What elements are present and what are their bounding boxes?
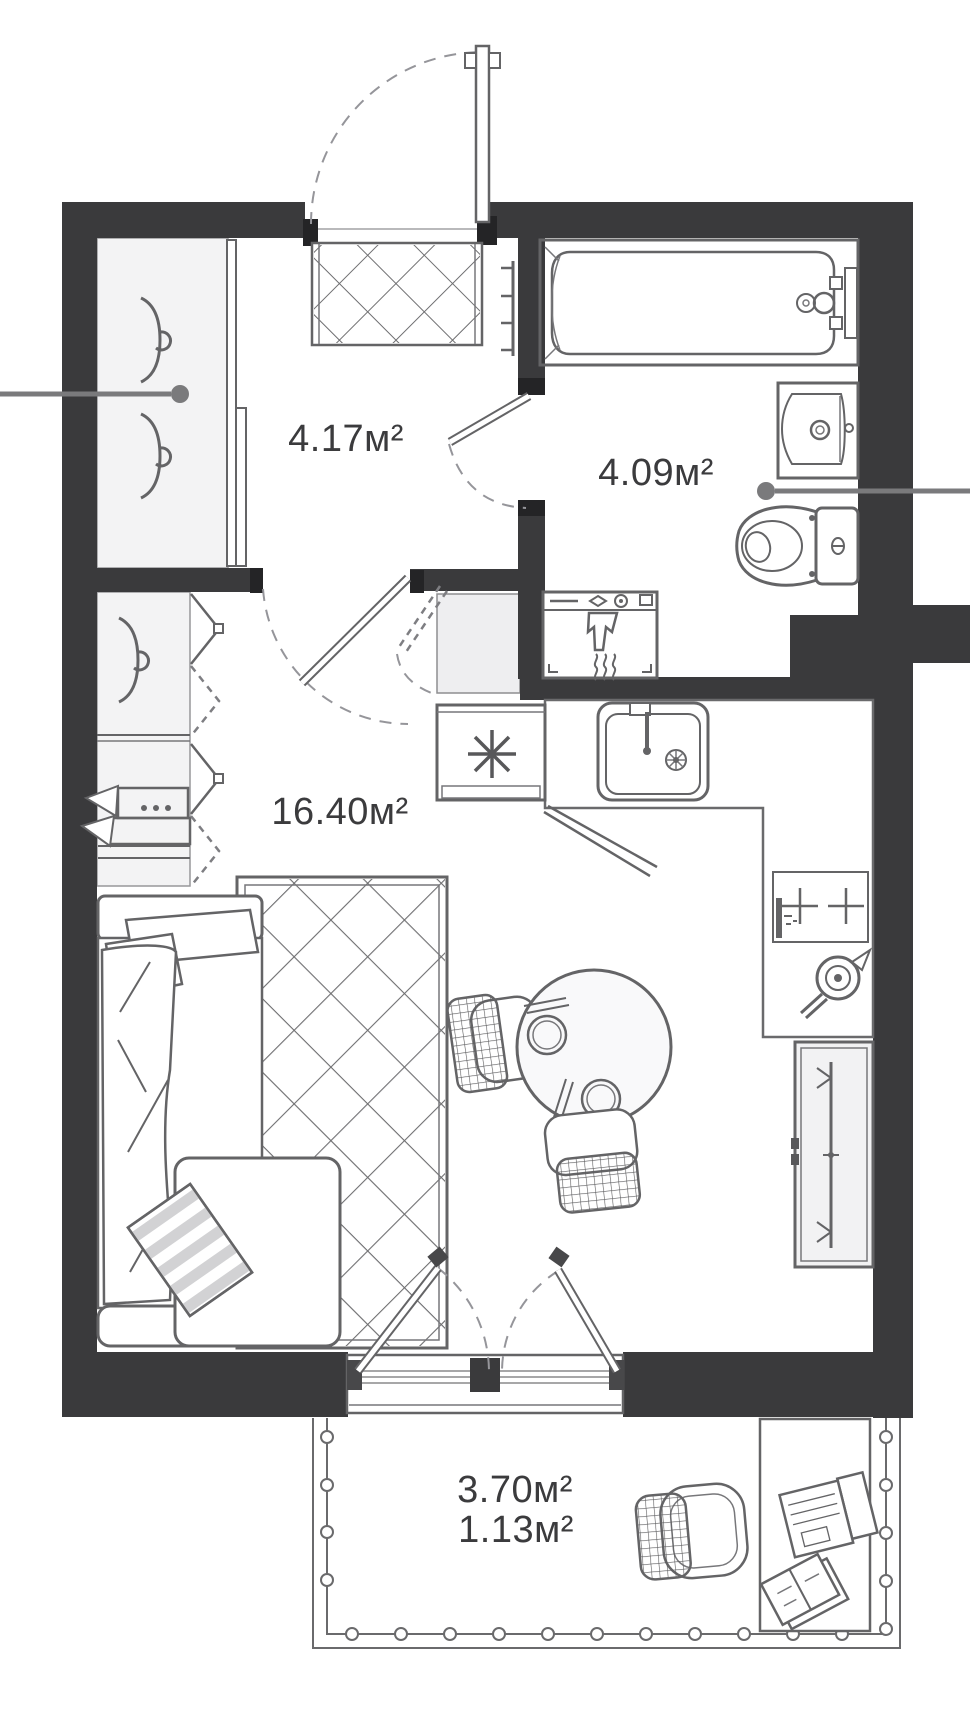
area-label-hallway: 4.17м² bbox=[288, 418, 404, 460]
dining-set bbox=[446, 970, 671, 1215]
bathtub bbox=[540, 240, 858, 365]
wall-segment bbox=[623, 1352, 912, 1417]
entry-closet-floor bbox=[97, 238, 228, 568]
floor-plan: 4.17м² 4.09м² 16.40м² 3.70м² 1.13м² bbox=[0, 0, 970, 1710]
wall-segment bbox=[913, 605, 970, 663]
window-mullion bbox=[470, 1358, 500, 1392]
door-handle bbox=[489, 53, 500, 68]
balcony bbox=[313, 1418, 900, 1648]
door-swing-icon bbox=[311, 52, 481, 224]
entrance-door bbox=[311, 46, 500, 229]
area-label-bathroom: 4.09м² bbox=[598, 452, 714, 494]
overhead-cabinet bbox=[437, 594, 520, 693]
area-label-balcony-coefficient: 1.13м² bbox=[458, 1509, 574, 1551]
bifold-doors bbox=[191, 594, 223, 886]
wall-segment bbox=[62, 202, 97, 1417]
wall-segment bbox=[873, 700, 913, 1418]
area-label-balcony-full: 3.70м² bbox=[457, 1469, 573, 1511]
floor-plan-page: 4.17м² 4.09м² 16.40м² 3.70м² 1.13м² bbox=[0, 0, 970, 1710]
sliding-door-panel bbox=[236, 408, 246, 566]
towel-rail bbox=[501, 261, 513, 356]
chair bbox=[543, 1108, 643, 1215]
door-swing-icon bbox=[449, 444, 526, 508]
wall-segment bbox=[520, 677, 913, 700]
wall-segment bbox=[410, 569, 520, 591]
wall-segment bbox=[62, 1352, 348, 1417]
door-leaf bbox=[450, 396, 529, 442]
living-room-door bbox=[263, 578, 408, 724]
door-swing-icon bbox=[263, 589, 408, 724]
sliding-door-panel bbox=[227, 240, 236, 566]
toilet bbox=[737, 507, 858, 585]
door-handle bbox=[465, 53, 476, 68]
wall-segment bbox=[485, 202, 913, 238]
doormat bbox=[312, 243, 482, 345]
bathroom-door bbox=[449, 396, 529, 508]
refrigerator-icon bbox=[468, 730, 516, 778]
door-leaf bbox=[302, 578, 408, 683]
cooktop bbox=[773, 872, 868, 942]
area-label-living-room: 16.40м² bbox=[271, 791, 408, 833]
fridge-door-line bbox=[548, 806, 657, 867]
bath-faucet bbox=[814, 268, 857, 338]
door-leaf bbox=[476, 46, 489, 222]
washing-machine bbox=[543, 592, 657, 680]
wall-segment bbox=[62, 202, 305, 238]
balcony-chair bbox=[634, 1481, 750, 1582]
tall-wardrobe bbox=[791, 1042, 873, 1267]
wall-segment bbox=[97, 568, 253, 592]
wall-segment bbox=[858, 238, 913, 700]
fridge-door-line bbox=[544, 812, 650, 876]
wall-segment bbox=[518, 503, 545, 679]
washbasin bbox=[778, 383, 858, 478]
